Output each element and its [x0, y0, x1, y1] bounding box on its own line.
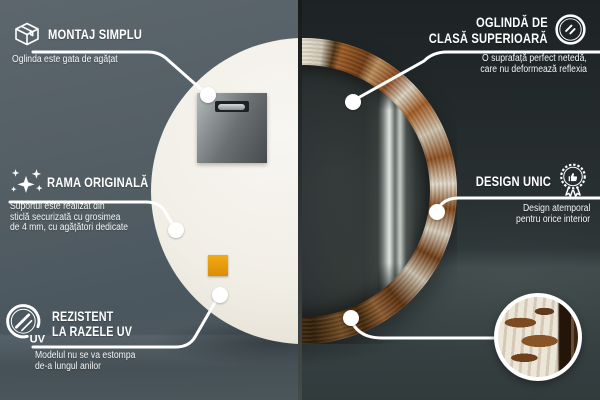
callout-design-subtitle: Design atemporal pentru orice interior [370, 204, 590, 225]
callout-oglinda-title: OGLINDĂ DE CLASĂ SUPERIOARĂ [399, 14, 548, 46]
callout-oglinda-subtitle: O suprafață perfect netedă, care nu defo… [347, 54, 587, 75]
award-badge-thumbs-up-icon [556, 162, 590, 200]
dot-montaj [200, 87, 216, 103]
split-divider-line [298, 0, 302, 400]
orange-label-sticker [208, 255, 228, 276]
texture-detail-circle [494, 293, 582, 381]
product-image: MONTAJ SIMPLU Oglinda este gata de agăța… [0, 0, 600, 400]
callout-montaj-title: MONTAJ SIMPLU [48, 26, 165, 42]
callout-rama-title: RAMA ORIGINALĂ [47, 174, 174, 190]
dot-detail [343, 310, 359, 326]
callout-uv-title: REZISTENT LA RAZELE UV [52, 309, 152, 339]
mounting-hook-tab [218, 104, 245, 110]
mounting-slot [215, 101, 249, 112]
callout-uv: UV REZISTENT LA RAZELE UV Modelul nu se … [3, 301, 213, 372]
package-box-icon [12, 19, 42, 49]
mirror-shine-icon [554, 13, 587, 46]
callout-oglinda: OGLINDĂ DE CLASĂ SUPERIOARĂ O suprafață … [347, 13, 587, 75]
sparkles-icon [8, 166, 44, 197]
callout-rama-subtitle: Suportul este realizat din sticlă securi… [10, 202, 218, 234]
callout-design: DESIGN UNIC Design atemporal pentru oric… [370, 162, 590, 225]
dot-oglinda [345, 94, 361, 110]
callout-design-title: DESIGN UNIC [457, 173, 551, 189]
uv-protection-icon: UV [3, 301, 49, 347]
callout-montaj-subtitle: Oglinda este gata de agățat [12, 55, 222, 66]
dot-uv [212, 287, 228, 303]
uv-icon-label: UV [30, 333, 46, 345]
mounting-plate [197, 93, 267, 163]
callout-rama: RAMA ORIGINALĂ Suportul este realizat di… [8, 166, 218, 234]
callout-uv-subtitle: Modelul nu se va estompa de-a lungul ani… [35, 351, 213, 372]
callout-montaj: MONTAJ SIMPLU Oglinda este gata de agăța… [12, 19, 222, 66]
